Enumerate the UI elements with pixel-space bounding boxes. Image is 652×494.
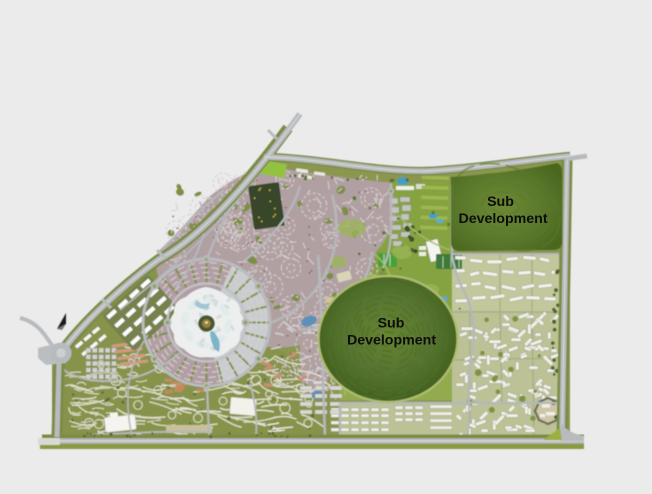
svg-text:Development: Development: [347, 333, 436, 349]
svg-text:Sub: Sub: [487, 194, 514, 210]
svg-text:Development: Development: [458, 211, 547, 227]
svg-text:Sub: Sub: [378, 316, 405, 332]
